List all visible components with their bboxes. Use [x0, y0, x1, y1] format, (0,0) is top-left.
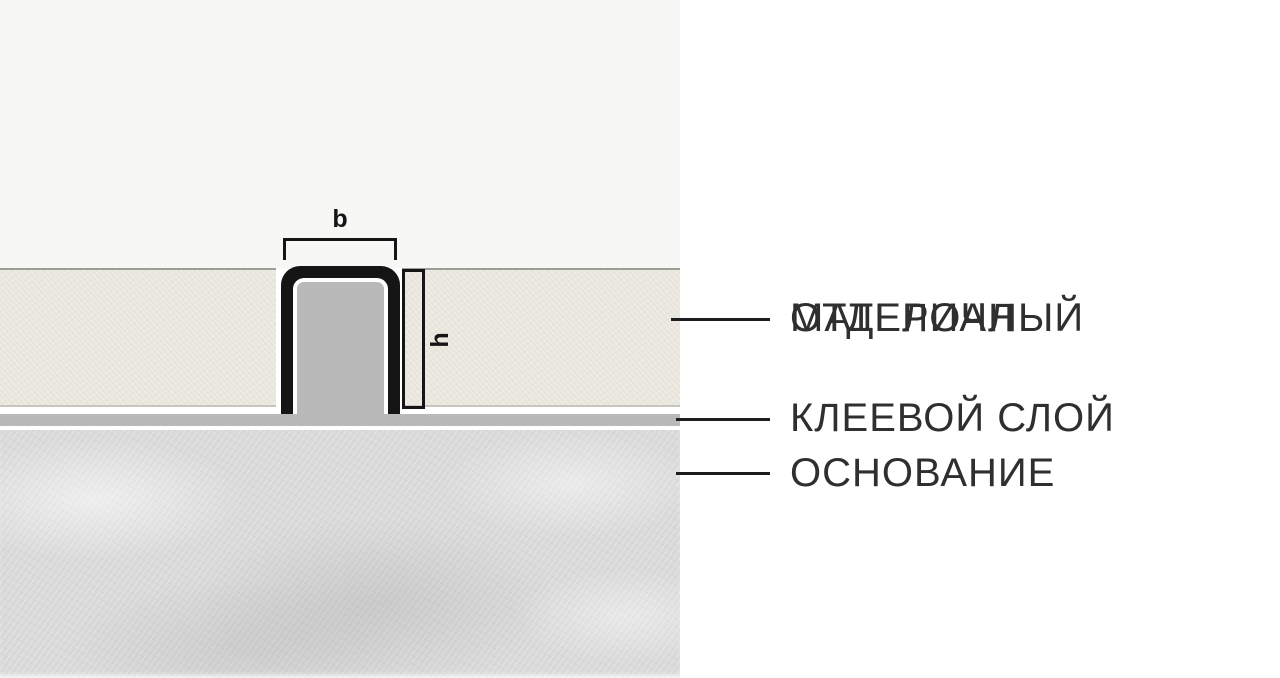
dimension-h-bracket	[402, 269, 425, 409]
label-adhesive-layer: КЛЕЕВОЙ СЛОЙ	[790, 394, 1115, 443]
profile-cross-section-infographic: b h ОТДЕЛОЧНЫЙ МАТЕРИАЛ КЛЕЕВОЙ СЛОЙ ОСН…	[0, 0, 1280, 678]
leader-line-finishing-material	[671, 318, 770, 321]
leader-line-adhesive-layer	[676, 418, 770, 421]
label-substrate: ОСНОВАНИЕ	[790, 449, 1055, 498]
label-finishing-material-line2: МАТЕРИАЛ	[790, 294, 1015, 343]
dimension-h-label: h	[425, 325, 455, 355]
dimension-b-bracket	[283, 238, 397, 260]
diagram-canvas: b h	[0, 0, 680, 678]
finishing-material-left-slab	[0, 268, 276, 407]
leader-line-substrate	[676, 472, 770, 475]
u-channel-core-filler	[297, 282, 384, 426]
substrate-layer	[0, 430, 680, 678]
dimension-b-label: b	[283, 204, 397, 234]
